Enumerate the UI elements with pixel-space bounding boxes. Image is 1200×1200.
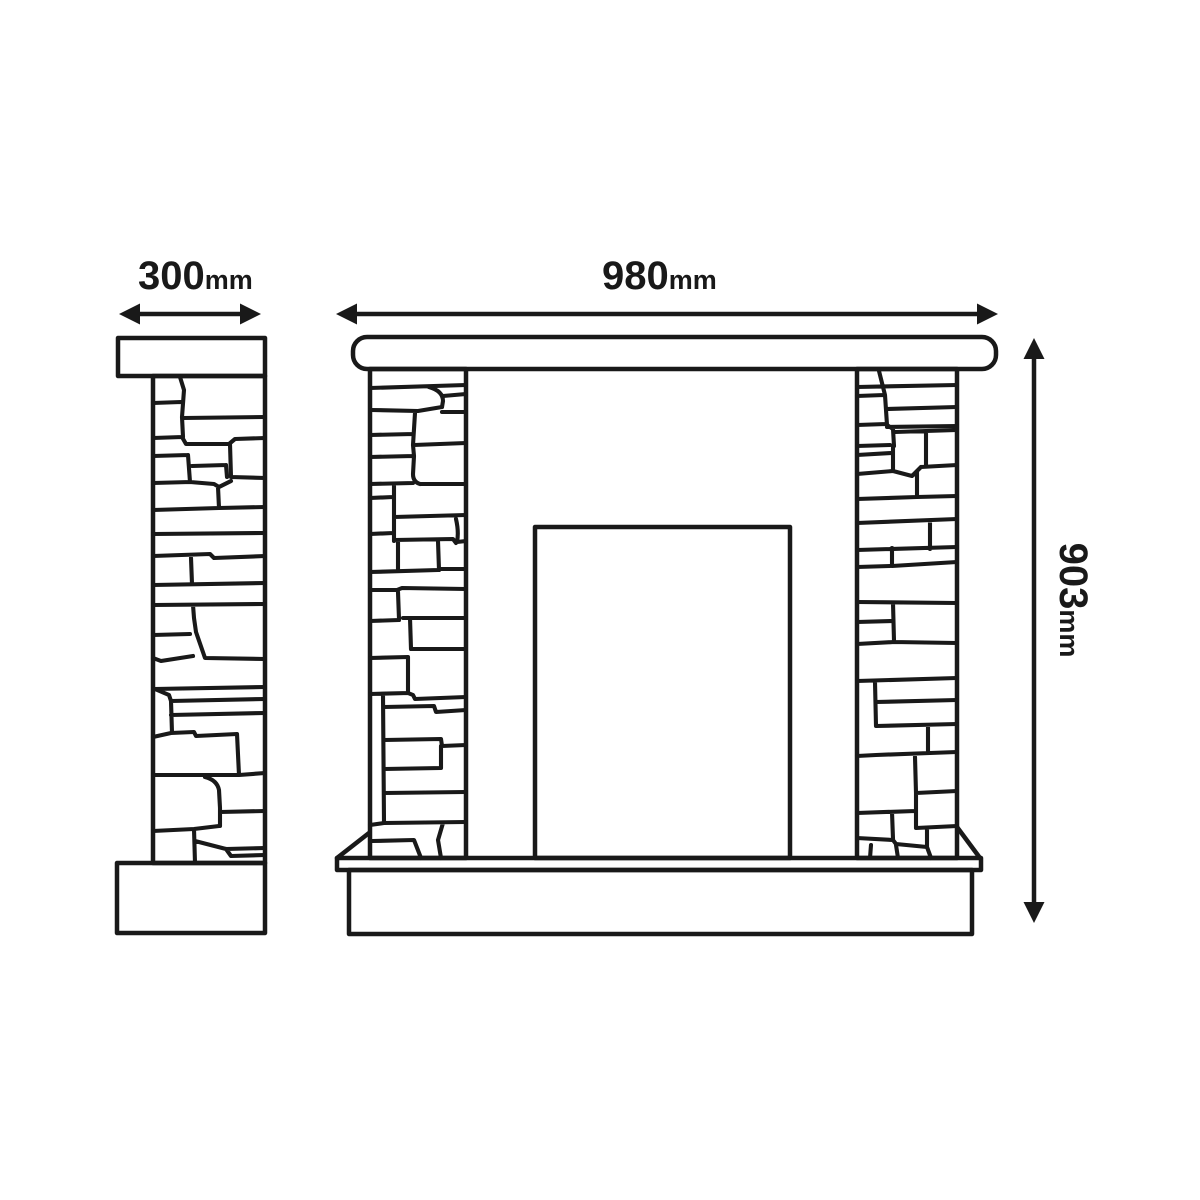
svg-text:903mm: 903mm [1051, 543, 1095, 658]
svg-text:980mm: 980mm [602, 254, 717, 298]
svg-text:300mm: 300mm [138, 254, 253, 298]
